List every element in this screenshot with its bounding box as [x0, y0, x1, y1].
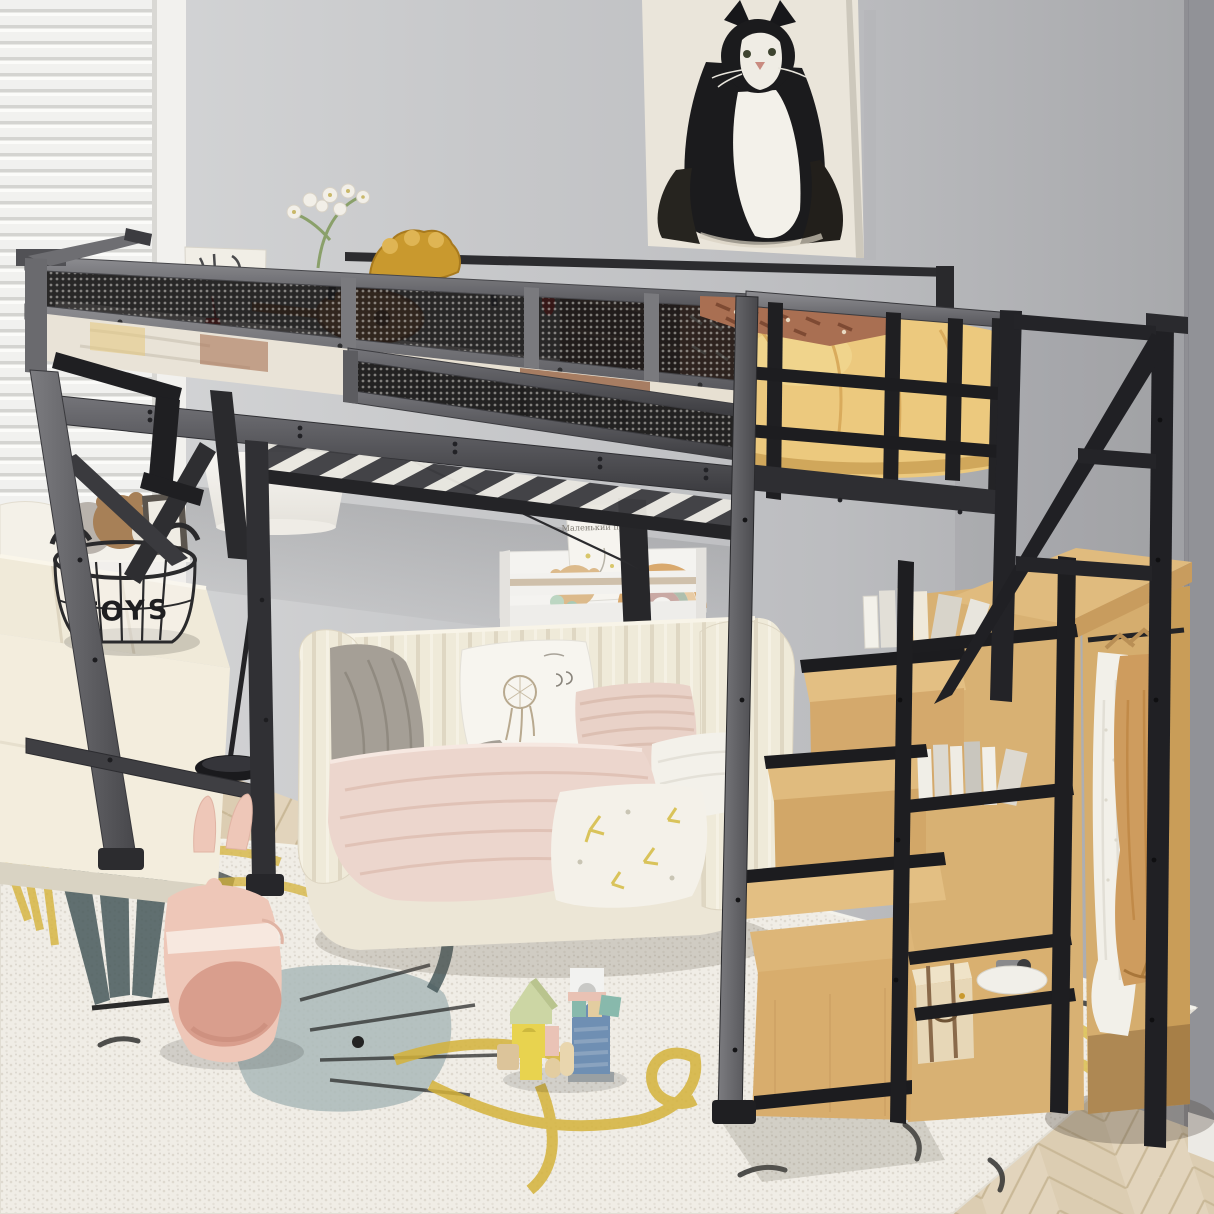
floral-sheet: [551, 784, 707, 908]
rail-divider: [524, 287, 539, 369]
bedroom-scene: TOYS Маленький принц: [0, 0, 1214, 1214]
cat-painting: [642, 0, 876, 260]
scene-svg: TOYS Маленький принц: [0, 0, 1214, 1214]
rail-divider: [341, 277, 356, 350]
wall-right-corner: [1188, 0, 1214, 1214]
guardrail-left-post: [25, 258, 47, 374]
rail-divider: [644, 293, 659, 382]
daybed-sofa: [298, 618, 795, 978]
dreamcatcher-pillow: [460, 640, 595, 758]
